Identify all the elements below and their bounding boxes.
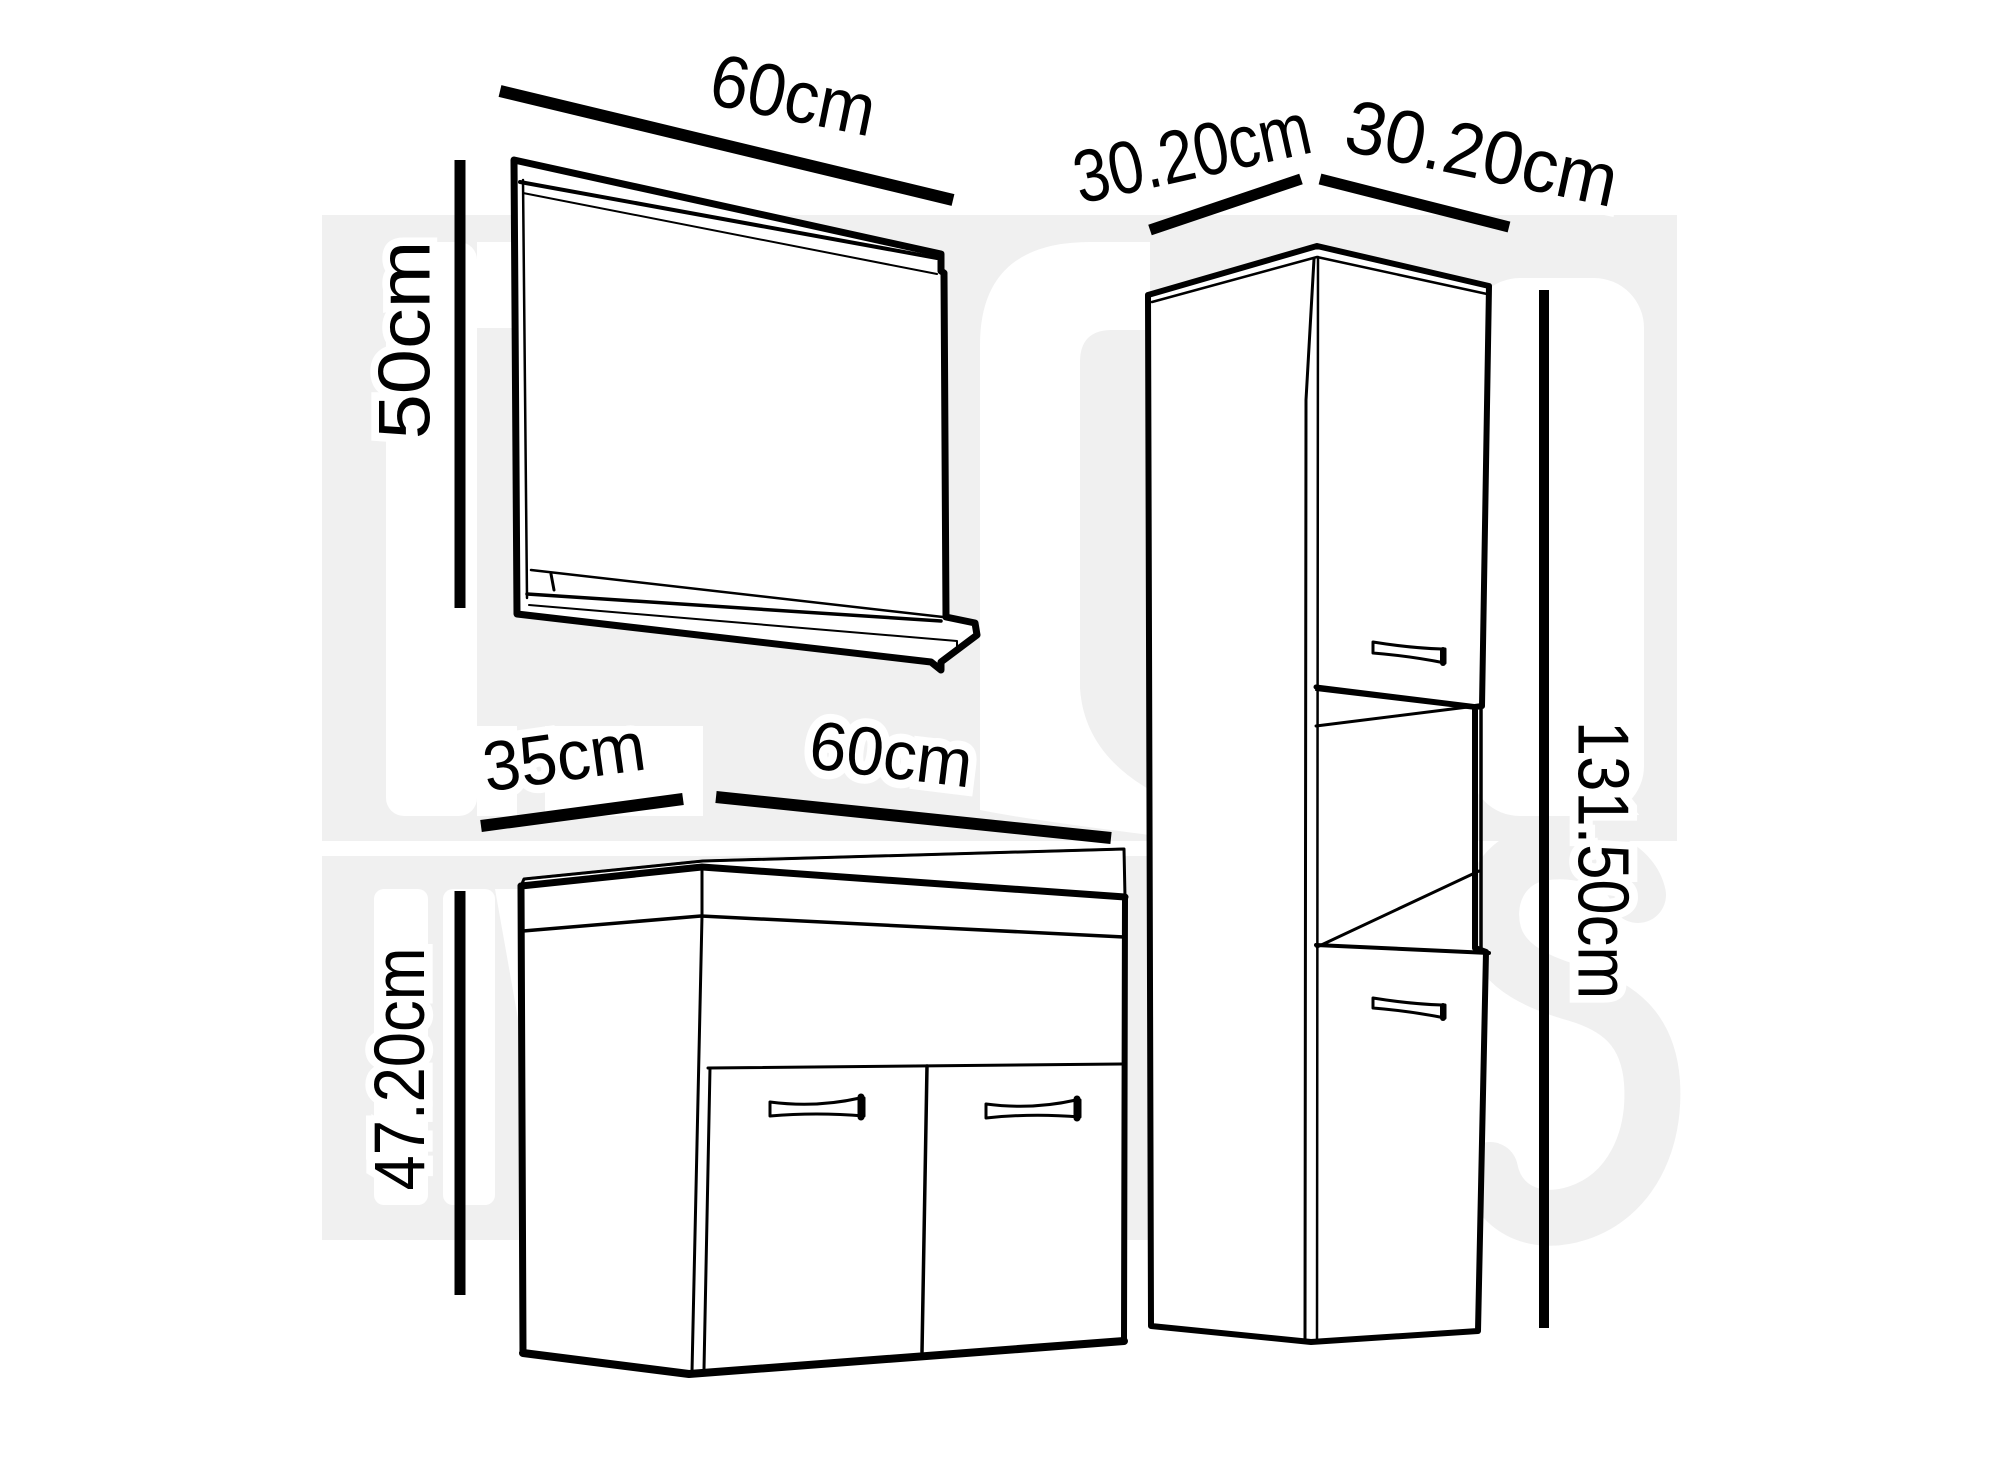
svg-text:47.20cm: 47.20cm — [360, 948, 439, 1191]
svg-text:50cm: 50cm — [364, 241, 445, 440]
svg-text:131.50cm: 131.50cm — [1563, 721, 1644, 999]
